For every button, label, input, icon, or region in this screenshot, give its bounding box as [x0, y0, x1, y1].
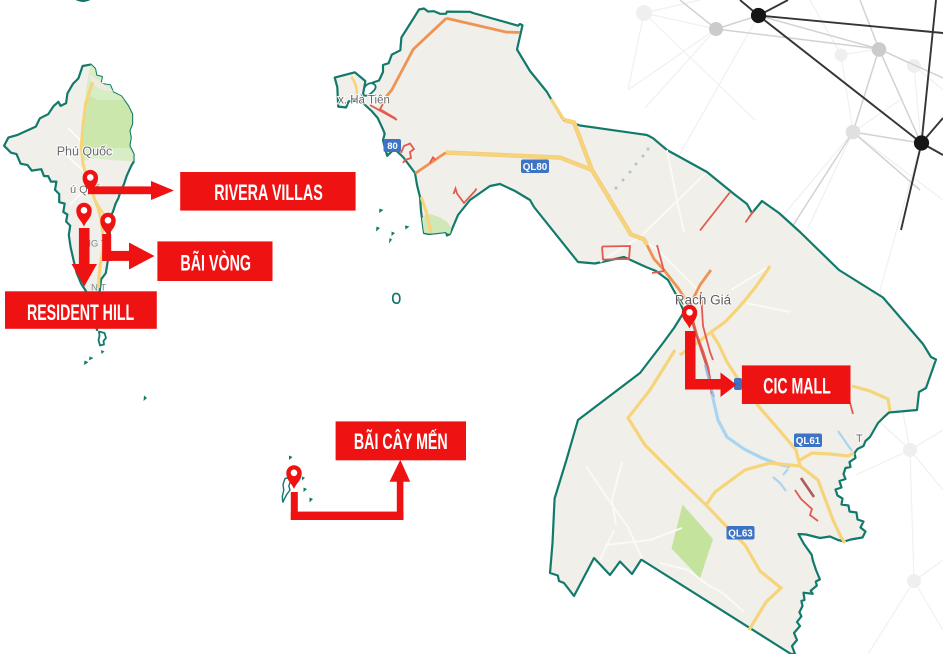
svg-text:80: 80 — [387, 141, 398, 152]
svg-text:QL80: QL80 — [523, 162, 548, 173]
svg-text:Phú Quốc: Phú Quốc — [57, 145, 113, 159]
svg-text:BÃI VÒNG: BÃI VÒNG — [180, 251, 251, 276]
svg-text:x. Hà Tiên: x. Hà Tiên — [338, 95, 390, 107]
svg-text:CIC MALL: CIC MALL — [763, 373, 831, 398]
svg-text:T: T — [856, 433, 863, 445]
svg-text:QL63: QL63 — [728, 529, 753, 540]
svg-text:RIVERA VILLAS: RIVERA VILLAS — [214, 180, 323, 205]
svg-text:Rạch Giá: Rạch Giá — [675, 293, 732, 308]
svg-text:QL61: QL61 — [796, 436, 821, 447]
svg-text:BÃI CÂY MẾN: BÃI CÂY MẾN — [354, 429, 448, 454]
svg-text:RESIDENT HILL: RESIDENT HILL — [27, 300, 134, 325]
